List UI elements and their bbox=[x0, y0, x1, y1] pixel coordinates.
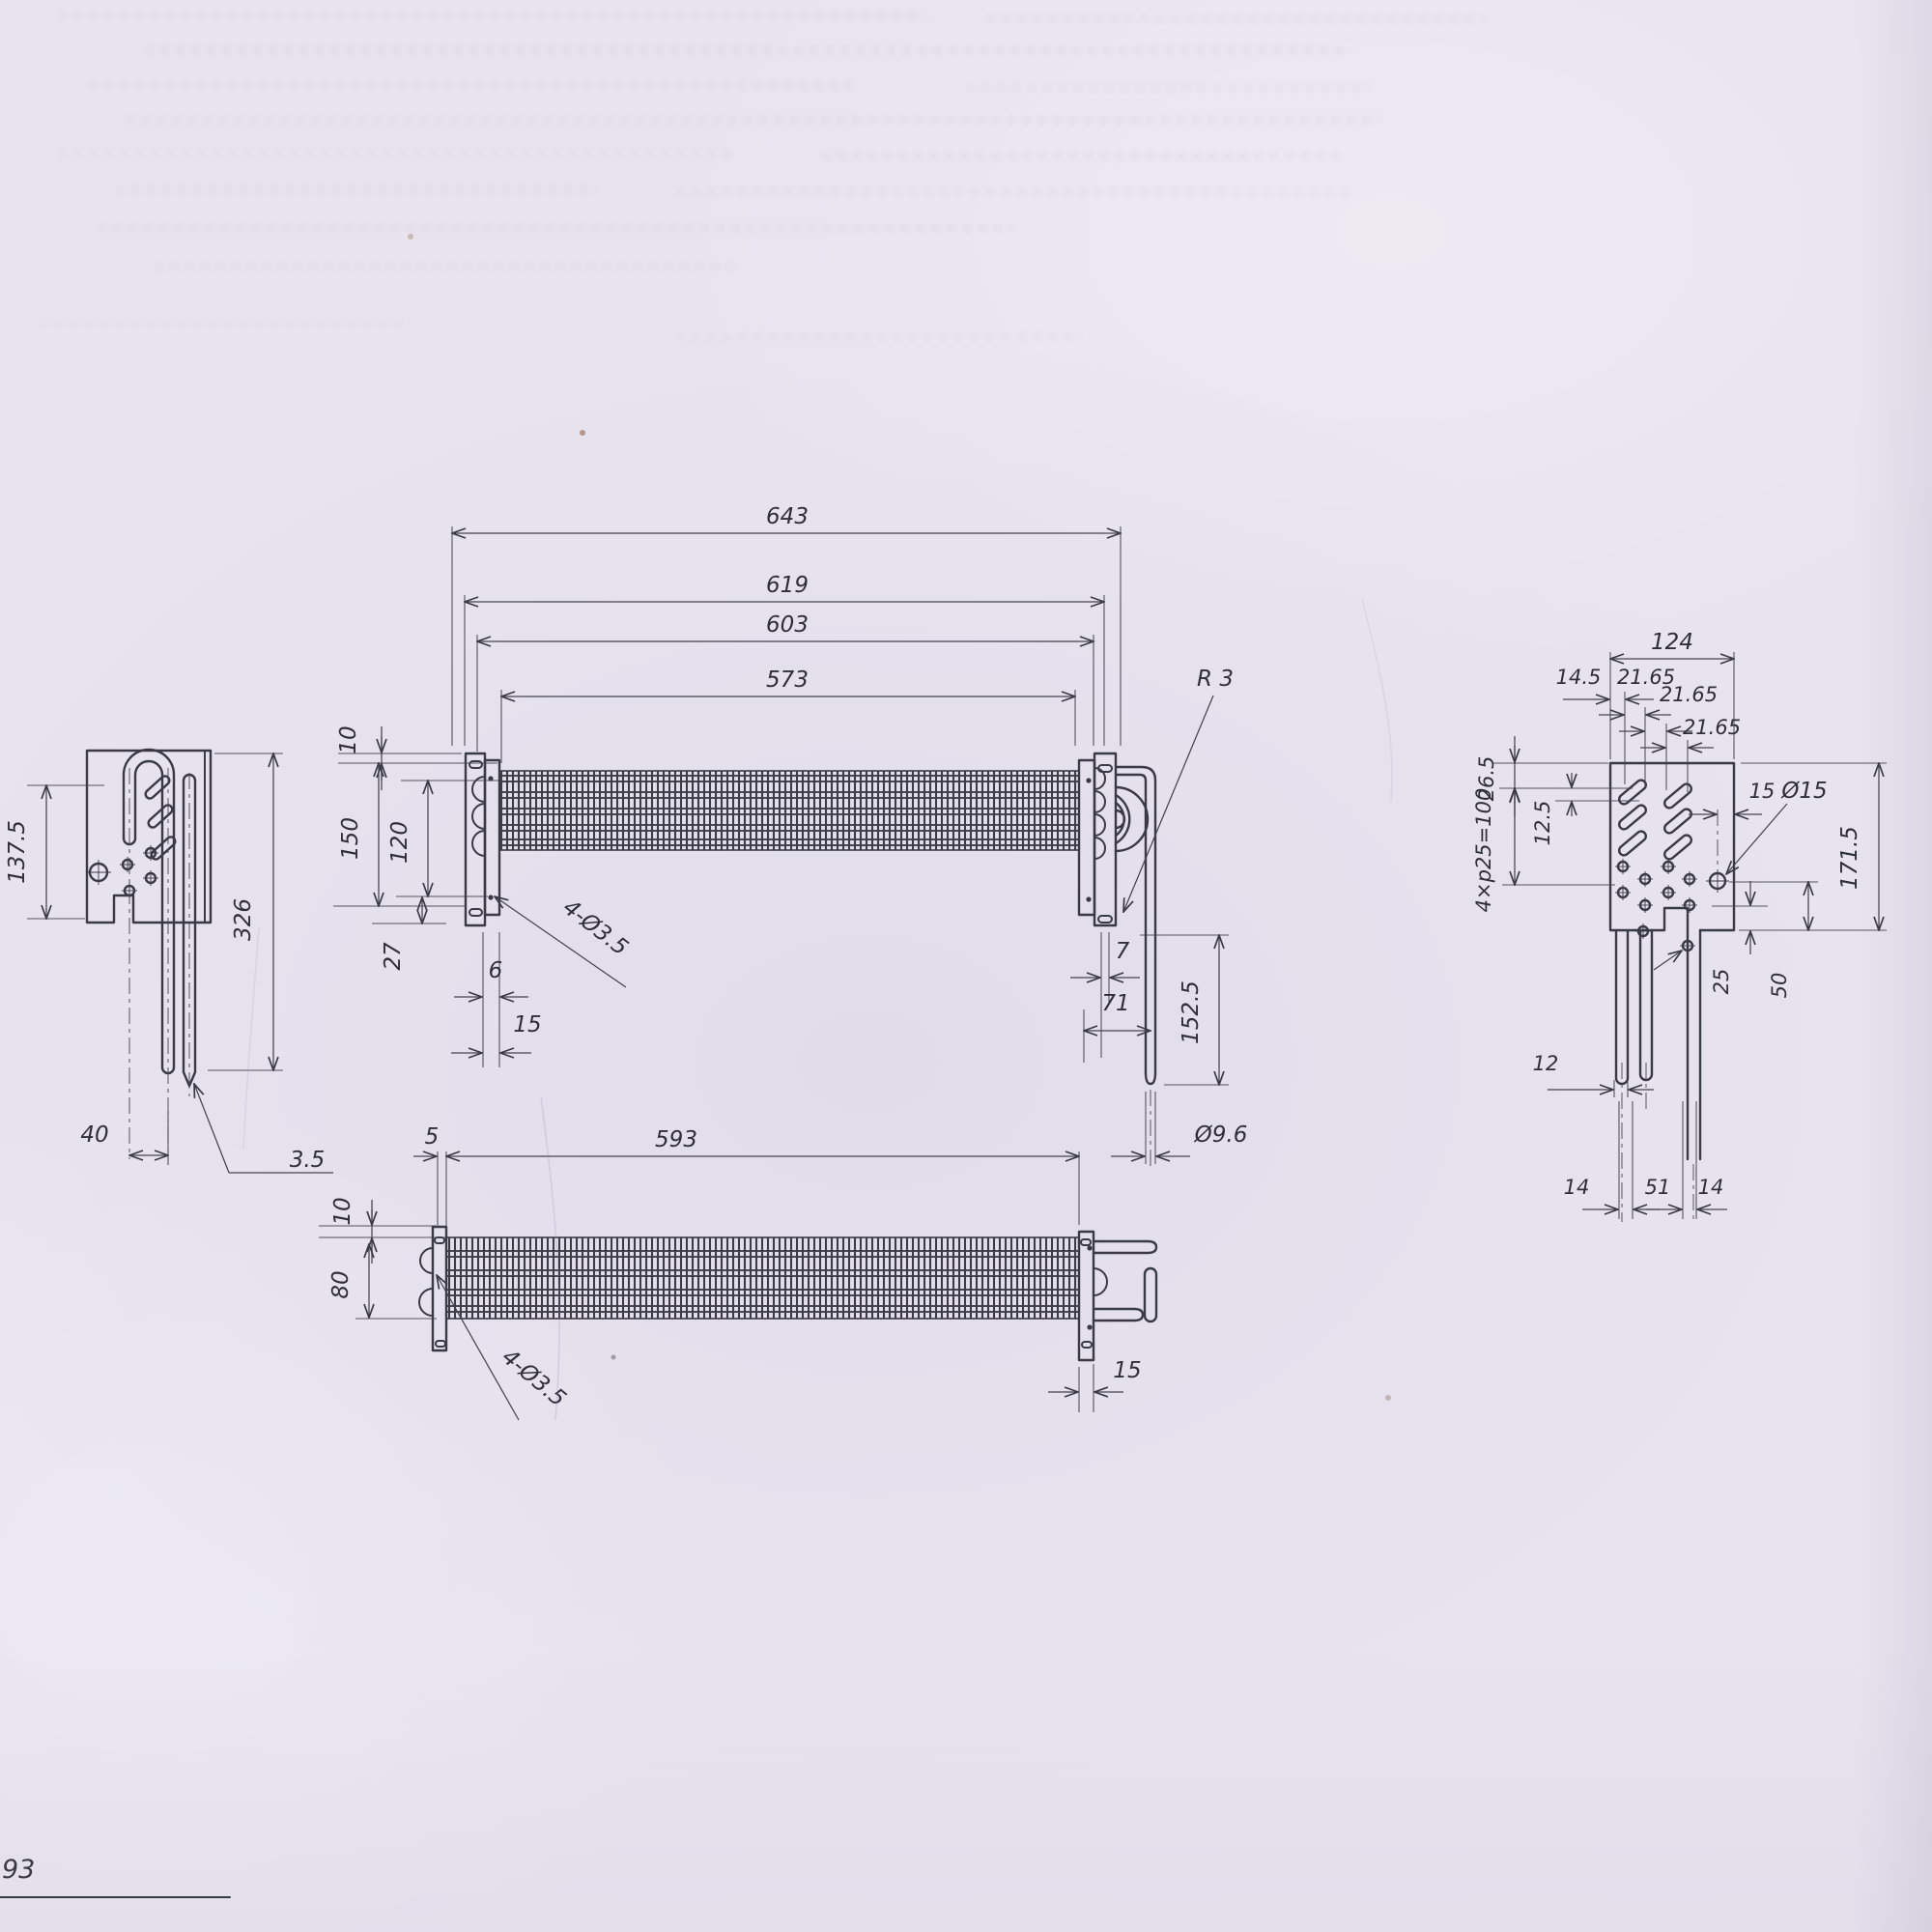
dim-label: 152.5 bbox=[1179, 980, 1204, 1044]
rivet-dot bbox=[1087, 1324, 1092, 1329]
louver-slot bbox=[1662, 782, 1693, 810]
page-fragments: 93 bbox=[0, 234, 1392, 1897]
dim-573: 573 bbox=[501, 668, 1075, 763]
dim-label: 4×p25=100 bbox=[1472, 788, 1495, 913]
dim-label: Ø15 bbox=[1780, 779, 1827, 804]
leader-4-holes: 4-Ø3.5 bbox=[495, 895, 633, 987]
fin-pack bbox=[499, 771, 1079, 850]
dim-label: 21.65 bbox=[1660, 683, 1718, 706]
mounting-slot bbox=[435, 1237, 444, 1243]
left-bracket-inner-plate bbox=[485, 760, 499, 915]
dim-593: 593 bbox=[446, 1127, 1079, 1225]
hairpin-tube-inner bbox=[135, 761, 162, 1067]
dim-5: 5 bbox=[413, 1124, 446, 1235]
dim-15-plan: 15 bbox=[1048, 1358, 1142, 1412]
dim-71: 71 bbox=[1084, 991, 1151, 1063]
dim-120: 120 bbox=[387, 781, 499, 896]
dim-label: 10 bbox=[336, 725, 361, 753]
dim-label: 12.5 bbox=[1531, 801, 1554, 846]
dim-label: 171.5 bbox=[1837, 826, 1862, 890]
louver-slot bbox=[144, 775, 171, 801]
side-view: 137.5 326 40 3.5 bbox=[5, 750, 333, 1173]
paper-crease bbox=[243, 927, 259, 1150]
dim-label: 14 bbox=[1698, 1176, 1724, 1199]
mounting-slot bbox=[1081, 1239, 1091, 1245]
dim-label: 80 bbox=[328, 1270, 354, 1298]
tube-bulge bbox=[1094, 1268, 1107, 1295]
dim-12: 12 bbox=[1533, 1052, 1654, 1097]
dim-40: 40 bbox=[80, 1111, 168, 1165]
dim-12-5: 12.5 bbox=[1531, 773, 1639, 845]
dim-label: 15 bbox=[1113, 1358, 1141, 1383]
dim-label: 27 bbox=[381, 942, 406, 971]
inlet-tube bbox=[1094, 1241, 1156, 1253]
dim-label: 124 bbox=[1651, 630, 1693, 655]
dim-tip-3-5: 3.5 bbox=[194, 1084, 333, 1173]
tube-end-scallops bbox=[1094, 768, 1105, 859]
louver-slot bbox=[147, 804, 174, 830]
dim-label: 50 bbox=[1768, 973, 1791, 999]
dim-dia-9-6: Ø9.6 bbox=[1111, 1092, 1247, 1164]
dim-label: 603 bbox=[766, 612, 809, 638]
dim-label: 15 bbox=[1749, 780, 1776, 803]
dim-label: 619 bbox=[766, 573, 809, 598]
mounting-hole-cross bbox=[86, 860, 111, 885]
dim-label: Ø9.6 bbox=[1194, 1122, 1248, 1148]
dim-6: 6 bbox=[454, 932, 528, 1067]
dim-label: 25 bbox=[1710, 969, 1733, 995]
dim-label: 71 bbox=[1101, 991, 1129, 1016]
left-bracket-outer-plate bbox=[466, 753, 485, 925]
end-view: 124 14.5 21.65 21.65 bbox=[1472, 630, 1887, 1222]
dim-label: 4-Ø3.5 bbox=[558, 895, 633, 960]
louver-slot bbox=[1617, 779, 1648, 807]
dim-label: 573 bbox=[766, 668, 809, 693]
dim-21-65-c: 21.65 bbox=[1640, 716, 1741, 792]
dia-15-hole-cross bbox=[1706, 869, 1729, 893]
inlet-tube-with-down-bend bbox=[1116, 767, 1155, 1084]
dim-label: 5 bbox=[425, 1124, 440, 1150]
tube-2 bbox=[1640, 930, 1652, 1080]
dim-label: 150 bbox=[338, 817, 363, 860]
left-return-bends bbox=[419, 1248, 433, 1316]
rivet-dot bbox=[1087, 1245, 1092, 1250]
paper-crease bbox=[1362, 599, 1392, 802]
right-bracket-inner-plate bbox=[1079, 760, 1094, 915]
dim-14-51-14: 14 51 14 bbox=[1564, 1101, 1727, 1219]
dim-label: 326 bbox=[231, 898, 256, 941]
front-view: 643 619 603 573 10 bbox=[333, 504, 1247, 1169]
dim-label: 7 bbox=[1116, 939, 1130, 964]
louver-slot bbox=[1617, 830, 1648, 858]
dim-label: 6 bbox=[489, 958, 503, 983]
tube-centerlines bbox=[129, 768, 189, 1159]
mounting-tab bbox=[1688, 930, 1700, 1159]
dim-10-plan: 10 bbox=[319, 1197, 446, 1264]
dim-137-5: 137.5 bbox=[5, 785, 104, 919]
mounting-slot bbox=[436, 1341, 445, 1347]
left-return-bends bbox=[472, 777, 485, 856]
dim-label: 51 bbox=[1645, 1176, 1671, 1199]
dim-label: 10 bbox=[330, 1197, 355, 1225]
louver-slot bbox=[1617, 804, 1648, 832]
leader-dia-15: Ø15 bbox=[1654, 779, 1828, 970]
dim-326: 326 bbox=[208, 753, 283, 1070]
plan-view: 5 593 10 80 4-Ø3.5 bbox=[319, 1124, 1156, 1420]
dim-label: 12 bbox=[1533, 1052, 1559, 1075]
mounting-slot bbox=[1098, 916, 1112, 923]
dim-label: R 3 bbox=[1197, 667, 1234, 692]
mounting-slot bbox=[1082, 1342, 1092, 1348]
dim-label: 15 bbox=[513, 1012, 541, 1037]
right-return-bends bbox=[1116, 787, 1148, 851]
mounting-slot bbox=[469, 761, 482, 768]
tube-1 bbox=[1616, 930, 1628, 1084]
dim-label: 593 bbox=[655, 1127, 697, 1152]
outlet-tube bbox=[1094, 1309, 1143, 1321]
dim-label: 40 bbox=[80, 1122, 108, 1148]
corner-fragment-text: 93 bbox=[2, 1855, 35, 1885]
dim-15-front: 15 bbox=[451, 1012, 542, 1053]
drawing-svg: 137.5 326 40 3.5 bbox=[0, 0, 1932, 1932]
dim-label: 21.65 bbox=[1683, 716, 1741, 739]
down-tube-section bbox=[1145, 1268, 1156, 1321]
dim-label: 3.5 bbox=[290, 1148, 326, 1173]
scanned-technical-drawing-page: 137.5 326 40 3.5 bbox=[0, 0, 1932, 1932]
dim-label: 137.5 bbox=[5, 820, 30, 884]
dim-label: 14.5 bbox=[1556, 666, 1602, 689]
dim-label: 14 bbox=[1564, 1176, 1590, 1199]
dim-50: 50 bbox=[1729, 882, 1818, 998]
leader-r3: R 3 bbox=[1123, 667, 1234, 912]
dim-27: 27 bbox=[372, 897, 446, 971]
dim-152-5: 152.5 bbox=[1140, 935, 1229, 1085]
paper-speck bbox=[1385, 1395, 1391, 1401]
paper-speck bbox=[408, 234, 413, 240]
dim-15-end: 15 bbox=[1689, 780, 1775, 872]
louver-slot bbox=[1662, 808, 1693, 836]
dim-619: 619 bbox=[465, 573, 1104, 746]
rivet-dot bbox=[488, 895, 493, 899]
rivet-dot bbox=[1086, 896, 1091, 901]
louver-slot bbox=[1662, 834, 1693, 862]
dim-label: 120 bbox=[387, 821, 412, 864]
mounting-slot bbox=[469, 909, 482, 916]
dim-25: 25 bbox=[1710, 881, 1768, 994]
paper-speck bbox=[611, 1355, 616, 1360]
dim-label: 643 bbox=[766, 504, 809, 529]
rivet-dot bbox=[1086, 778, 1091, 782]
paper-speck bbox=[580, 430, 585, 436]
